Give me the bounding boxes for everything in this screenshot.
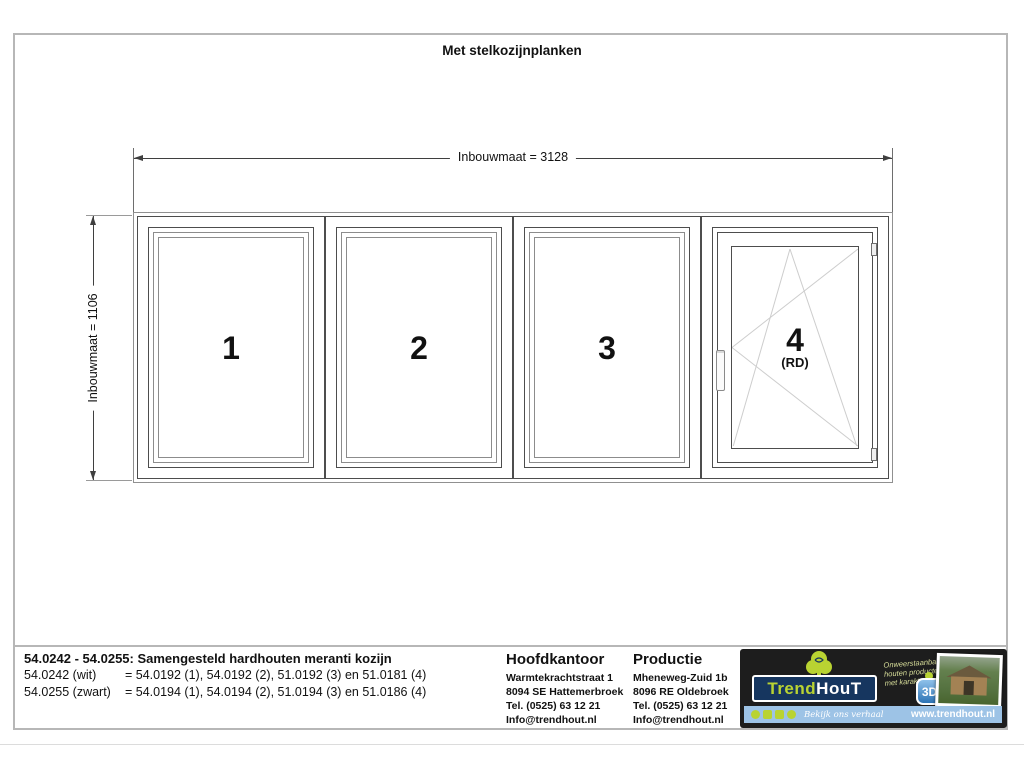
- page-bottom-edge: [0, 744, 1024, 745]
- address-line: Mheneweg-Zuid 1b: [633, 671, 743, 685]
- sash-glass-boundary: 4 (RD): [731, 246, 859, 449]
- panel-number: 3: [594, 333, 620, 363]
- glazing-bead: 3: [529, 232, 685, 463]
- brand-logo-block: TrendHouT Onweerstaanbare houten product…: [740, 649, 1007, 728]
- variant-label: 54.0255 (zwart): [24, 684, 125, 701]
- variant-value: = 54.0194 (1), 54.0194 (2), 51.0194 (3) …: [125, 684, 426, 701]
- frame-rebate: 3: [524, 227, 690, 468]
- email-line: Info@trendhout.nl: [506, 713, 632, 727]
- frame-unit-1: 1: [137, 216, 325, 479]
- phone-line: Tel. (0525) 63 12 21: [506, 699, 632, 713]
- arrow-down-icon: [90, 471, 96, 480]
- office-heading: Productie: [633, 651, 743, 668]
- office-heading: Hoofdkantoor: [506, 651, 632, 668]
- brand-cta: Bekijk ons verhaal: [804, 710, 884, 720]
- page-title: Met stelkozijnplanken: [0, 43, 1024, 58]
- extension-line-bottom: [86, 480, 132, 481]
- product-info-block: 54.0242 - 54.0255: Samengesteld hardhout…: [24, 650, 426, 700]
- frame-unit-3: 3: [513, 216, 701, 479]
- glazing-bead: 1: [153, 232, 309, 463]
- office-hoofdkantoor: Hoofdkantoor Warmtekrachtstraat 1 8094 S…: [506, 651, 632, 727]
- office-address: Warmtekrachtstraat 1 8094 SE Hattemerbro…: [506, 671, 632, 727]
- office-productie: Productie Mheneweg-Zuid 1b 8096 RE Oldeb…: [633, 651, 743, 727]
- window-frame-assembly: 1 2 3: [137, 216, 889, 479]
- product-photo: [935, 653, 1003, 708]
- social-icon: [763, 710, 772, 719]
- brand-name-trend: Trend: [767, 679, 816, 699]
- arrow-right-icon: [883, 155, 892, 161]
- panel-label-group: 4 (RD): [732, 247, 858, 448]
- brand-name-hout: HouT: [816, 679, 861, 699]
- panel-number: 2: [406, 333, 432, 363]
- glass-pane: 4 (RD): [732, 247, 858, 448]
- sash-frame: 4 (RD): [717, 232, 873, 463]
- frame-rebate: 1: [148, 227, 314, 468]
- address-line: 8094 SE Hattemerbroek: [506, 685, 632, 699]
- frame-unit-2: 2: [325, 216, 513, 479]
- hinge-top-icon: [871, 243, 877, 256]
- frame-rebate: 2: [336, 227, 502, 468]
- phone-line: Tel. (0525) 63 12 21: [633, 699, 743, 713]
- office-address: Mheneweg-Zuid 1b 8096 RE Oldebroek Tel. …: [633, 671, 743, 727]
- frame-unit-4-tilt-turn: 4 (RD): [701, 216, 889, 479]
- panel-number: 1: [218, 333, 244, 363]
- brand-footer-bar: Bekijk ons verhaal www.trendhout.nl: [744, 706, 1002, 723]
- arrow-left-icon: [134, 155, 143, 161]
- variant-row-wit: 54.0242 (wit) = 54.0192 (1), 54.0192 (2)…: [24, 667, 426, 684]
- panel-sub-label: (RD): [778, 355, 811, 370]
- variant-value: = 54.0192 (1), 54.0192 (2), 51.0192 (3) …: [125, 667, 426, 684]
- drawing-sheet: Met stelkozijnplanken Inbouwmaat = 3128 …: [0, 0, 1024, 768]
- window-handle-icon: [716, 350, 725, 391]
- extension-line-right: [892, 148, 893, 212]
- variant-row-zwart: 54.0255 (zwart) = 54.0194 (1), 54.0194 (…: [24, 684, 426, 701]
- photo-scene: [938, 656, 1000, 705]
- height-dimension-label: Inbouwmaat = 1106: [86, 285, 100, 410]
- brand-logo: TrendHouT: [752, 675, 877, 702]
- tree-icon: [802, 651, 836, 677]
- social-icon: [751, 710, 760, 719]
- panel-number: 4: [782, 325, 808, 355]
- width-dimension-label: Inbouwmaat = 3128: [450, 150, 576, 164]
- glass-pane: 2: [346, 237, 492, 458]
- arrow-up-icon: [90, 216, 96, 225]
- brand-website: www.trendhout.nl: [911, 709, 995, 720]
- frame-rebate: 4 (RD): [712, 227, 878, 468]
- social-icon: [787, 710, 796, 719]
- address-line: 8096 RE Oldebroek: [633, 685, 743, 699]
- glazing-bead: 2: [341, 232, 497, 463]
- address-line: Warmtekrachtstraat 1: [506, 671, 632, 685]
- variant-label: 54.0242 (wit): [24, 667, 125, 684]
- product-title: 54.0242 - 54.0255: Samengesteld hardhout…: [24, 650, 426, 667]
- social-icon: [775, 710, 784, 719]
- email-line: Info@trendhout.nl: [633, 713, 743, 727]
- glass-pane: 1: [158, 237, 304, 458]
- cabin-door: [964, 681, 974, 694]
- glass-pane: 3: [534, 237, 680, 458]
- hinge-bottom-icon: [871, 448, 877, 461]
